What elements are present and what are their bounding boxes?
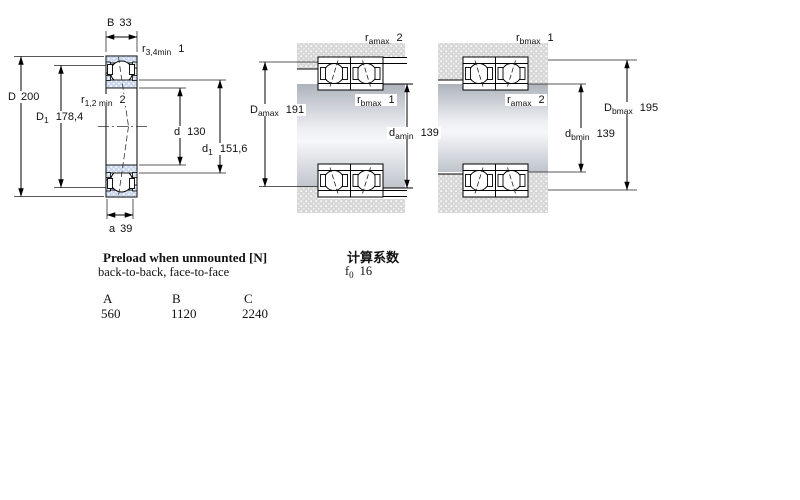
shoulder-bottom-left <box>438 174 463 197</box>
calculation-factor-title: 计算系数 <box>347 251 399 265</box>
calculation-f0: f016 <box>345 265 372 279</box>
housing-shoulder-bottom <box>297 187 318 199</box>
dim-label-d1: d1151,6 <box>200 143 249 155</box>
bearing-pair-bottom <box>318 164 383 197</box>
technical-drawings <box>0 0 800 340</box>
dim-label-Damax: Damax191 <box>248 104 306 116</box>
bearing-pair-top <box>318 57 383 90</box>
dim-label-a: a39 <box>109 223 132 235</box>
preload-col-B: B <box>172 292 181 306</box>
housing-bottom <box>297 199 405 213</box>
dim-label-rbmax-a: rbmax1 <box>355 94 397 106</box>
preload-title: Preload when unmounted [N] <box>103 251 267 265</box>
bearing-pair-bottom <box>463 164 528 197</box>
housing-shoulder-top <box>297 57 318 69</box>
dim-label-ramax-b: ramax2 <box>505 94 547 106</box>
dim-label-B: B33 <box>107 17 132 29</box>
preload-subtitle: back-to-back, face-to-face <box>98 266 229 280</box>
dim-label-D1: D1178,4 <box>34 111 85 123</box>
preload-val-B: 1120 <box>171 307 197 321</box>
dim-label-rbmax-b: rbmax1 <box>516 32 554 44</box>
upper-bearing-half <box>106 56 137 88</box>
preload-val-C: 2240 <box>242 307 268 321</box>
dim-label-dbmin: dbmin139 <box>563 128 617 140</box>
shoulder-bottom-right <box>528 172 548 197</box>
preload-col-C: C <box>244 292 253 306</box>
shoulder-top-left <box>438 57 463 80</box>
preload-val-A: 560 <box>101 307 121 321</box>
dim-label-r34min: r3,4min1 <box>142 43 184 55</box>
dim-label-ramax-a: ramax2 <box>365 32 403 44</box>
lower-bearing-half <box>106 165 137 197</box>
dim-label-damin: damin139 <box>387 127 441 139</box>
dim-label-D: D200 <box>6 91 41 103</box>
dim-label-Dbmax: Dbmax195 <box>602 102 660 114</box>
preload-col-A: A <box>103 292 112 306</box>
bearing-datasheet-drawing: B33 r3,4min1 D200 D1178,4 r1,2 min2 d130… <box>0 0 800 500</box>
shoulder-top-right <box>528 57 548 84</box>
housing-bottom <box>438 197 548 213</box>
dim-label-r12min: r1,2 min2 <box>79 94 128 106</box>
bearing-cross-section-drawing <box>14 31 226 219</box>
dim-label-d: d130 <box>172 126 207 138</box>
bearing-pair-top <box>463 57 528 90</box>
